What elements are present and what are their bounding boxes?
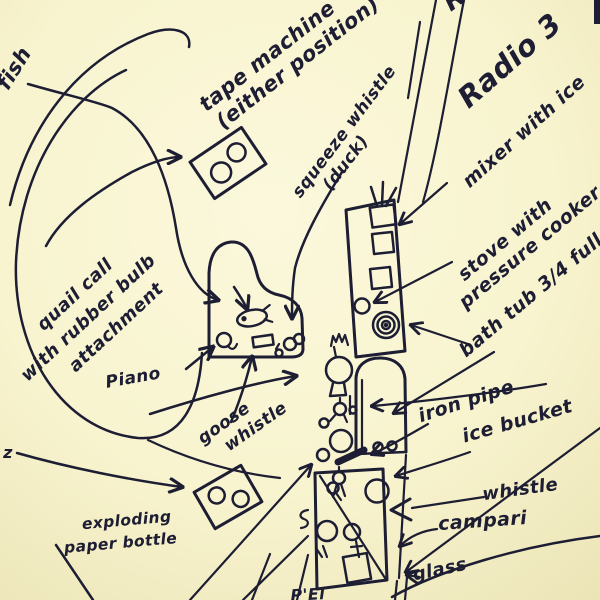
tape-machine-leader-arrow <box>46 157 180 246</box>
top-leader-lines <box>398 0 464 202</box>
lower-table-drawing <box>301 455 407 600</box>
diagram-canvas: fish tape machine (either position) sque… <box>0 0 600 600</box>
label-whistle: whistle <box>481 474 559 505</box>
iron-pipe-leader <box>372 424 428 454</box>
label-bottom-cutoff: P'El <box>290 584 326 600</box>
pot-icon <box>355 299 370 314</box>
label-campari: campari <box>437 507 527 535</box>
corner-mark <box>594 0 600 24</box>
piano-drawing <box>209 242 304 357</box>
label-exploding-line1: exploding <box>81 507 172 533</box>
label-radio-cutoff: R <box>437 0 471 18</box>
crown-whistle-doodle <box>326 334 352 396</box>
label-left-edge-mark: z <box>2 443 13 462</box>
stove-table-drawing <box>346 182 405 357</box>
label-glass: glass <box>411 554 469 586</box>
radio-box-icon-1 <box>372 232 394 254</box>
label-exploding: exploding paper bottle <box>60 507 177 557</box>
label-squeeze-whistle: squeeze whistle (duck) <box>288 62 416 214</box>
label-piano: Piano <box>104 363 162 392</box>
glass-icon <box>343 553 371 583</box>
stage-diagram: fish tape machine (either position) sque… <box>0 0 600 600</box>
goose-whistle-icon <box>252 335 273 348</box>
campari-bottle-icon <box>317 521 337 541</box>
label-exploding-line2: paper bottle <box>62 529 178 557</box>
exploding-leader-arrow <box>17 453 182 487</box>
ice-bucket-leader <box>396 452 470 476</box>
quail-call-icon <box>217 333 231 347</box>
stove-table-leader-arrows <box>375 183 468 344</box>
campari-leader-arrow <box>400 529 437 546</box>
mixer-box-icon <box>370 204 397 227</box>
radio-box-icon-2 <box>370 267 392 289</box>
burner-spiral-icon <box>373 312 399 338</box>
label-fish: fish <box>0 43 36 94</box>
whistle-doodle-cluster <box>317 398 352 497</box>
fish-icon <box>235 305 273 329</box>
tape-machine-icon-1 <box>190 127 266 198</box>
